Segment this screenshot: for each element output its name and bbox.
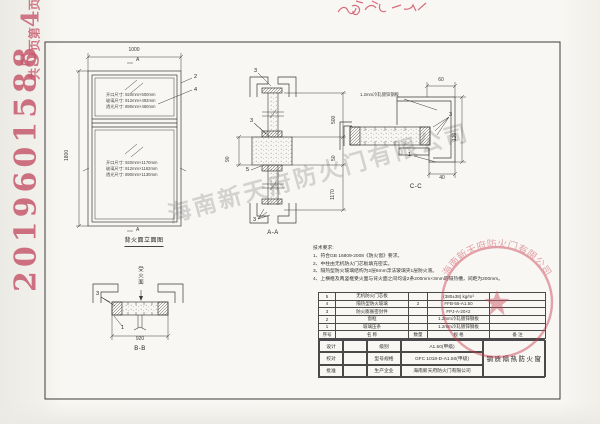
part-note — [490, 323, 546, 331]
part-no: 5 — [319, 293, 336, 301]
part-no: 3 — [319, 308, 336, 316]
product-name: 钢质隔热防火窗 — [483, 340, 546, 377]
design-label: 设计 — [319, 340, 343, 352]
header-name: 名 称 — [336, 331, 409, 339]
part-name: 玻璃压条 — [336, 323, 409, 331]
bb-dim-920: 920 — [136, 337, 144, 343]
fire-side-arrow — [139, 296, 143, 301]
approve-label: 批准 — [319, 365, 343, 377]
part-spec: FPJ-A-20×2 — [428, 308, 490, 316]
tech-requirements: 技术要求: 1、符合GB 16809-2008《防火窗》要求。 2、中柱由无机防… — [313, 245, 553, 284]
part-qty: 2 — [409, 300, 428, 308]
grade-value: A1.50(甲级) — [401, 340, 483, 352]
part-note — [490, 293, 546, 301]
part-qty — [409, 315, 428, 323]
cc-steel-note: 1.2mm冷轧镀锌钢板 — [360, 93, 399, 98]
page-note-char: 共 — [28, 68, 42, 80]
page-note-char: 5 — [16, 51, 45, 68]
aa-dim-50: 50 — [331, 155, 337, 161]
table-row: 5 无机防火门芯板 (380±38) kg/m³ — [319, 293, 546, 301]
title-block: 设计 级别 A1.50(甲级) 钢质隔热防火窗 校对 型号规格 GFC 1018… — [318, 339, 545, 378]
page-note-char: 第 — [28, 27, 42, 39]
callout-glass: 4 — [194, 87, 197, 93]
cc-dim-120: 120 — [452, 133, 458, 141]
table-header-row: 序号 名 称 数量 规 格 备 注 — [319, 331, 546, 339]
tech-item: 2、中柱由无机防火门芯板填充密实。 — [313, 261, 553, 269]
aa-dim-500: 500 — [331, 116, 337, 124]
part-qty — [409, 308, 428, 316]
elevation-width-dim: 1000 — [128, 48, 139, 54]
aa-dim-90: 90 — [225, 156, 231, 162]
producer-value: 海南新天府防火门有限公司 — [401, 365, 483, 377]
check-label: 校对 — [319, 352, 343, 364]
callout-frame: 2 — [194, 74, 197, 80]
aa-callout-mid: 3 — [250, 118, 253, 124]
upper-pane-dims: 开口尺寸: 920mm×500mm 玻璃尺寸: 912mm×492mm 透光尺寸… — [106, 92, 155, 110]
upper-daylight-size: 透光尺寸: 890mm×460mm — [106, 104, 155, 110]
approve-signature — [343, 365, 367, 377]
tech-requirements-title: 技术要求: — [313, 245, 553, 253]
grade-label: 级别 — [367, 340, 401, 352]
aa-callout-bottom: 3 — [253, 217, 256, 223]
part-qty — [409, 323, 428, 331]
part-no: 1 — [319, 323, 336, 331]
part-name: 隔热型防火玻璃 — [336, 300, 409, 308]
cc-section-label: C-C — [410, 184, 422, 191]
part-no: 4 — [319, 300, 336, 308]
lower-pane-dims: 开口尺寸: 920mm×1170mm 玻璃尺寸: 912mm×1162mm 透光… — [106, 160, 157, 178]
part-name: 无机防火门芯板 — [336, 293, 409, 301]
header-note: 备 注 — [490, 331, 546, 339]
part-no: 2 — [319, 315, 336, 323]
table-row: 1 玻璃压条 1.2mm冷轧镀锌钢板 — [319, 323, 546, 331]
header-qty: 数量 — [409, 331, 428, 339]
part-name: 窗框 — [336, 315, 409, 323]
part-qty — [409, 293, 428, 301]
header-spec: 规 格 — [428, 331, 490, 339]
part-note — [490, 315, 546, 323]
bb-callout-seal: 3 — [96, 291, 99, 297]
elevation-title: 背火面立面图 — [124, 238, 163, 247]
tech-item: 4、上横框及两竖框受火面与背火面之间均设2条200mm×3mm的隔热槽，间距为2… — [313, 276, 553, 284]
aa-dim-1170: 1170 — [330, 189, 336, 200]
aa-callout-top: 3 — [254, 68, 257, 74]
aa-section-label: A-A — [267, 230, 279, 237]
part-spec: FFB-55-A1.50 — [428, 300, 490, 308]
part-note — [490, 308, 546, 316]
bb-section-label: B-B — [134, 346, 146, 353]
model-label: 型号规格 — [367, 352, 401, 364]
model-value: GFC 1018-D-A1.50(甲级) — [401, 352, 483, 364]
parts-table: 5 无机防火门芯板 (380±38) kg/m³ 4 隔热型防火玻璃 2 FFB… — [318, 292, 546, 339]
tech-item: 1、符合GB 16809-2008《防火窗》要求。 — [313, 253, 553, 261]
bb-fire-side-label: 受火面 — [137, 266, 143, 286]
part-spec: (380±38) kg/m³ — [428, 293, 490, 301]
part-spec: 1.2mm冷轧镀锌钢板 — [428, 323, 490, 331]
design-signature — [343, 340, 367, 352]
cc-callout-seal: 3 — [449, 112, 452, 118]
tech-item: 3、隔热型防火玻璃结构为2层8mm浮法玻璃夹1层防火液。 — [313, 268, 553, 276]
part-spec: 1.2mm冷轧镀锌钢板 — [428, 315, 490, 323]
table-row: 2 窗框 1.2mm冷轧镀锌钢板 — [319, 315, 546, 323]
lower-daylight-size: 透光尺寸: 890mm×1130mm — [106, 172, 157, 178]
elevation-height-dim: 1800 — [64, 150, 70, 161]
cc-dim-40: 40 — [439, 176, 445, 182]
aa-callout-core: 5 — [246, 167, 249, 173]
scanned-drawing-sheet: 海南新天府防火门有限公司 — [0, 0, 600, 424]
page-note-char: 4 — [16, 11, 45, 28]
part-name: 防火膨胀密封件 — [336, 308, 409, 316]
table-row: 3 防火膨胀密封件 FPJ-A-20×2 — [319, 308, 546, 316]
section-a-mark-bottom: A — [136, 228, 139, 234]
table-row: 4 隔热型防火玻璃 2 FFB-55-A1.50 — [319, 300, 546, 308]
bb-callout-bead: 1 — [121, 325, 124, 331]
cc-dim-60: 60 — [438, 78, 444, 84]
part-note — [490, 300, 546, 308]
section-a-mark-top: A — [136, 58, 139, 64]
check-signature — [343, 352, 367, 364]
page-note-char: 页 — [28, 0, 42, 11]
page-note-char: 页 — [28, 39, 42, 51]
producer-label: 生产企业 — [367, 365, 401, 377]
header-no: 序号 — [319, 331, 336, 339]
cc-callout-bead: 1 — [408, 152, 411, 158]
